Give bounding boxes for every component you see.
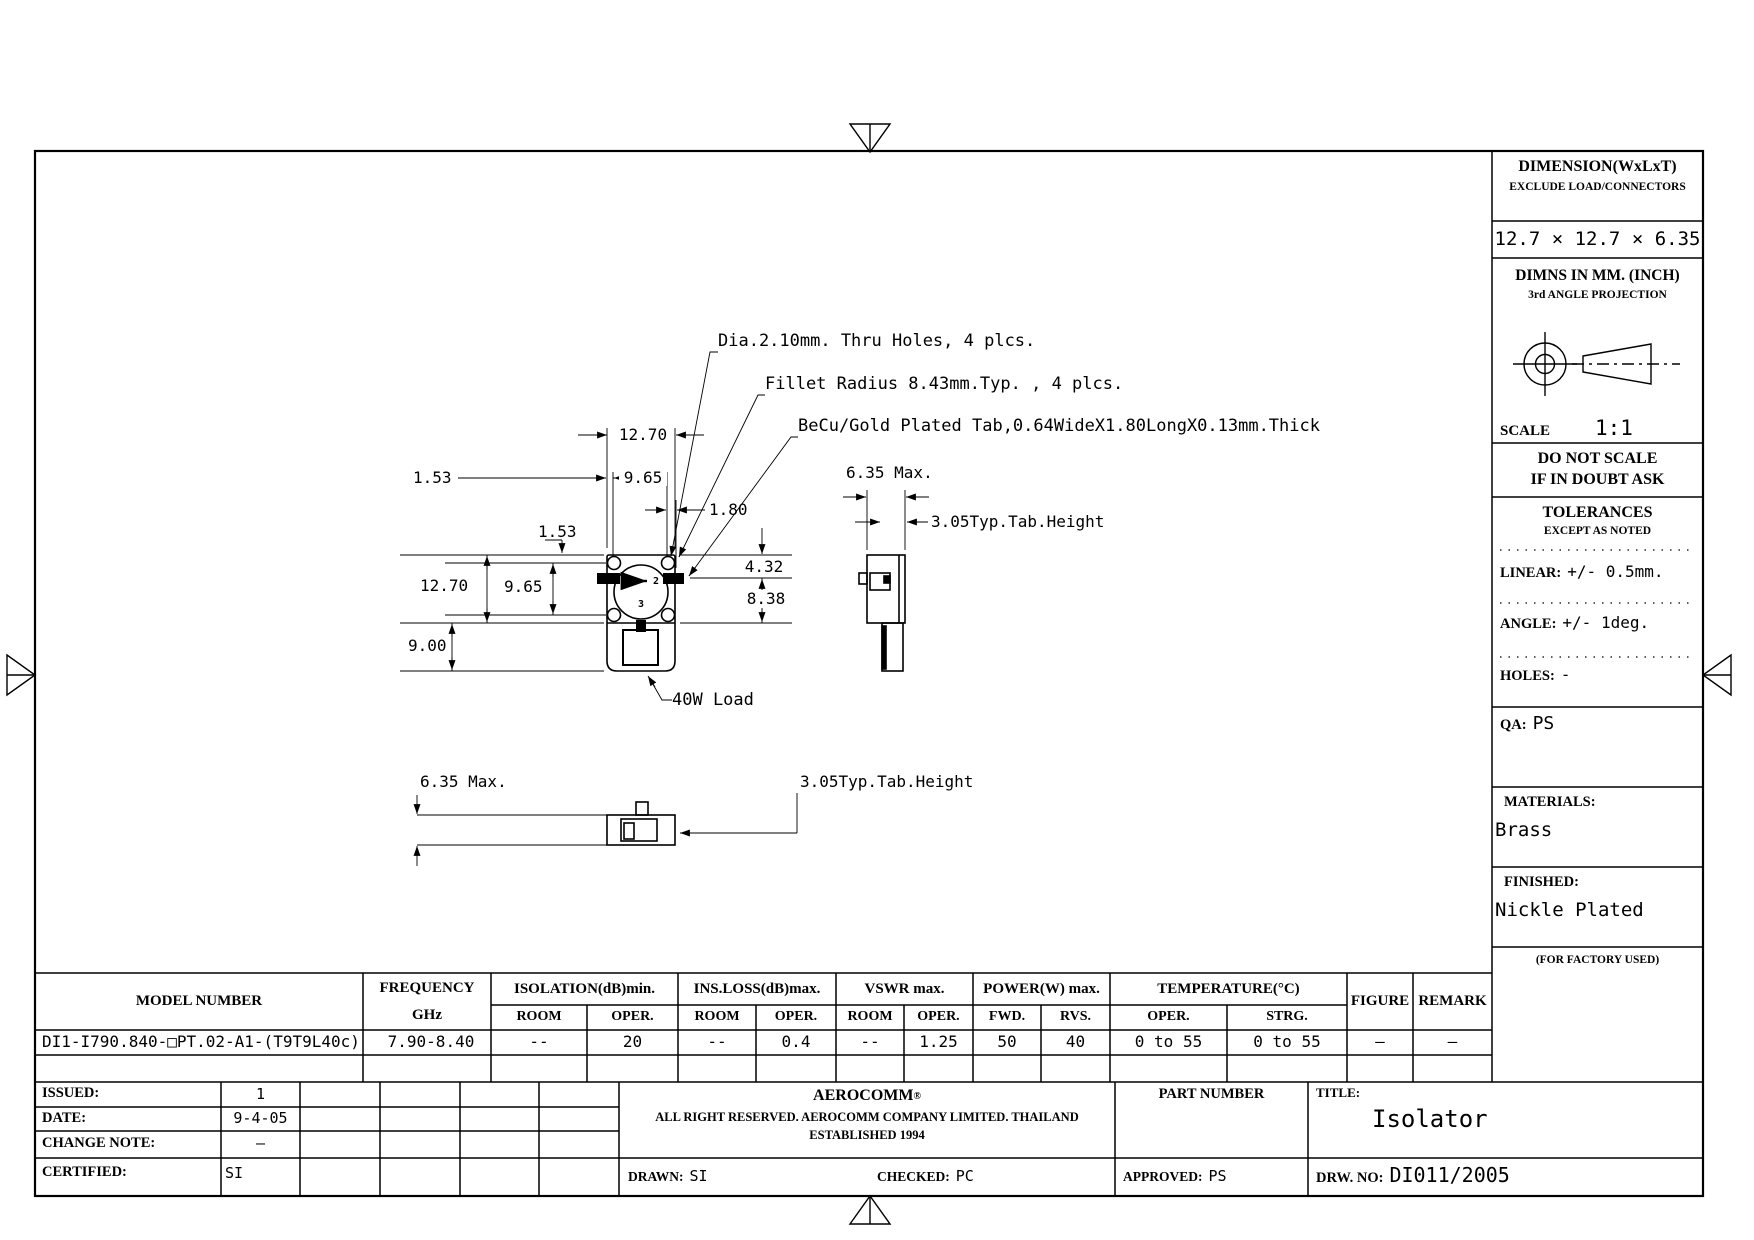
finished-label: FINISHED: (1504, 875, 1579, 891)
cell-temp-oper: 0 to 55 (1110, 1031, 1227, 1053)
drawing-linework (0, 0, 1754, 1240)
col-insloss: INS.LOSS(dB)max. (678, 977, 836, 1001)
load-label: 40W Load (672, 691, 754, 710)
finished-value: Nickle Plated (1495, 900, 1644, 921)
col-figure: FIGURE (1347, 973, 1413, 1030)
col-temp-strg: STRG. (1227, 1006, 1347, 1028)
title-value: Isolator (1372, 1106, 1488, 1132)
checked-row: CHECKED: PC (877, 1168, 974, 1185)
col-power-rvs: RVS. (1041, 1006, 1110, 1028)
bottom-view (607, 802, 675, 845)
front-view (597, 555, 684, 671)
cell-figure: — (1347, 1031, 1413, 1053)
col-model-number: MODEL NUMBER (35, 973, 363, 1030)
dim-right-838: 8.38 (740, 590, 792, 608)
dim-left-965: 9.65 (504, 578, 543, 596)
col-vswr-oper: OPER. (904, 1006, 973, 1028)
title-label: TITLE: (1316, 1086, 1360, 1100)
dim-right-432: 4.32 (738, 558, 790, 576)
tolerance-angle: ANGLE: +/- 1deg. (1500, 614, 1649, 633)
cell-temp-strg: 0 to 55 (1227, 1031, 1347, 1053)
col-temp-oper: OPER. (1110, 1006, 1227, 1028)
projection-symbol (1513, 332, 1680, 396)
linear-label: LINEAR: (1500, 566, 1561, 582)
scale-value: 1:1 (1595, 417, 1633, 440)
drawn-value: SI (690, 1168, 708, 1185)
col-remark: REMARK (1413, 973, 1492, 1030)
holes-value: - (1561, 666, 1571, 684)
checked-label: CHECKED: (877, 1170, 950, 1185)
checked-value: PC (956, 1168, 974, 1185)
cell-iso-oper: 20 (587, 1031, 678, 1053)
cell-power-rvs: 40 (1041, 1031, 1110, 1053)
drawn-row: DRAWN: SI (628, 1168, 708, 1185)
col-ins-oper: OPER. (756, 1006, 836, 1028)
col-frequency: FREQUENCY (363, 977, 491, 999)
port-1-label: 1 (620, 575, 630, 587)
col-vswr: VSWR max. (836, 977, 973, 1001)
date-value: 9-4-05 (221, 1108, 300, 1129)
approved-row: APPROVED: PS (1123, 1168, 1227, 1185)
dimension-header: DIMENSION(WxLxT) (1492, 157, 1703, 177)
port-3-label: 3 (636, 598, 646, 610)
col-iso-oper: OPER. (587, 1006, 678, 1028)
company-name: AEROCOMM® (619, 1086, 1115, 1106)
dim-left-1270: 12.70 (420, 577, 468, 595)
col-power: POWER(W) max. (973, 977, 1110, 1001)
certified-value: SI (225, 1161, 295, 1185)
dimension-value: 12.7 × 12.7 × 6.35 (1494, 226, 1701, 252)
callout-fillet-radius: Fillet Radius 8.43mm.Typ. , 4 plcs. (765, 375, 1123, 394)
cell-power-fwd: 50 (973, 1031, 1041, 1053)
cell-ins-room: -- (678, 1031, 756, 1053)
cell-vswr-oper: 1.25 (904, 1031, 973, 1053)
cell-iso-room: -- (491, 1031, 587, 1053)
certified-label: CERTIFIED: (42, 1161, 217, 1185)
part-number-label: PART NUMBER (1115, 1086, 1308, 1104)
change-note-value: – (221, 1132, 300, 1155)
col-ins-room: ROOM (678, 1006, 756, 1028)
company-name-text: AEROCOMM (813, 1087, 913, 1105)
approved-label: APPROVED: (1123, 1170, 1203, 1185)
col-frequency-unit: GHz (363, 1004, 491, 1026)
materials-label: MATERIALS: (1504, 795, 1596, 811)
angle-value: +/- 1deg. (1562, 614, 1649, 632)
col-vswr-room: ROOM (836, 1006, 904, 1028)
drawing-sheet: Dia.2.10mm. Thru Holes, 4 plcs. Fillet R… (0, 0, 1754, 1240)
dim-left-900: 9.00 (408, 637, 447, 655)
tolerance-holes: HOLES: - (1500, 666, 1570, 685)
change-note-label: CHANGE NOTE: (42, 1132, 227, 1155)
drw-no-label: DRW. NO: (1316, 1171, 1383, 1187)
do-not-scale-line2: IF IN DOUBT ASK (1492, 470, 1703, 490)
issued-value: 1 (221, 1083, 300, 1105)
cell-remark: — (1413, 1031, 1492, 1053)
cell-vswr-room: -- (836, 1031, 904, 1053)
angle-label: ANGLE: (1500, 617, 1556, 633)
side-tab-label: 3.05Typ.Tab.Height (931, 513, 1104, 531)
dim-top-width: 12.70 (615, 426, 671, 443)
dim-top-153: 1.53 (413, 469, 452, 487)
col-power-fwd: FWD. (973, 1006, 1041, 1028)
tolerance-linear: LINEAR: +/- 0.5mm. (1500, 563, 1664, 582)
cell-ins-oper: 0.4 (756, 1031, 836, 1053)
centering-marks (7, 124, 1731, 1224)
port-2-label: 2 (651, 575, 661, 587)
dimension-subheader: EXCLUDE LOAD/CONNECTORS (1492, 180, 1703, 195)
company-line1: ALL RIGHT RESERVED. AEROCOMM COMPANY LIM… (619, 1110, 1115, 1126)
company-line2: ESTABLISHED 1994 (619, 1128, 1115, 1144)
bottom-width-label: 6.35 Max. (420, 773, 507, 791)
scale-label: SCALE (1500, 423, 1550, 440)
issued-label: ISSUED: (42, 1083, 217, 1105)
col-isolation: ISOLATION(dB)min. (491, 977, 678, 1001)
qa-value: PS (1533, 714, 1555, 734)
col-iso-room: ROOM (491, 1006, 587, 1028)
bottom-tab-label: 3.05Typ.Tab.Height (800, 773, 973, 791)
registered-mark-icon: ® (913, 1091, 920, 1102)
callout-plated-tab: BeCu/Gold Plated Tab,0.64WideX1.80LongX0… (798, 417, 1320, 436)
dim-top-965: 9.65 (619, 469, 667, 486)
side-width-label: 6.35 Max. (846, 464, 933, 482)
factory-note: (FOR FACTORY USED) (1492, 953, 1703, 967)
drawn-label: DRAWN: (628, 1170, 684, 1185)
linear-value: +/- 0.5mm. (1567, 563, 1663, 581)
drw-no-value: DI011/2005 (1389, 1164, 1509, 1186)
dim-left-153: 1.53 (538, 523, 577, 541)
qa-label: QA: (1500, 718, 1527, 734)
drawing-number-row: DRW. NO: DI011/2005 (1316, 1164, 1510, 1187)
dimns-header: DIMNS IN MM. (INCH) (1492, 266, 1703, 286)
tolerances-header: TOLERANCES (1492, 503, 1703, 523)
qa-row: QA: PS (1500, 714, 1554, 734)
holes-label: HOLES: (1500, 669, 1555, 685)
approved-value: PS (1209, 1168, 1227, 1185)
dim-tab-180: 1.80 (709, 501, 748, 519)
tolerances-subheader: EXCEPT AS NOTED (1492, 524, 1703, 538)
col-temperature: TEMPERATURE(°C) (1110, 977, 1347, 1001)
projection-label: 3rd ANGLE PROJECTION (1492, 288, 1703, 302)
date-label: DATE: (42, 1108, 217, 1129)
side-view (859, 555, 905, 671)
do-not-scale-line1: DO NOT SCALE (1492, 449, 1703, 469)
materials-value: Brass (1495, 820, 1552, 841)
callout-thru-holes: Dia.2.10mm. Thru Holes, 4 plcs. (718, 332, 1035, 351)
cell-frequency: 7.90-8.40 (371, 1031, 491, 1053)
